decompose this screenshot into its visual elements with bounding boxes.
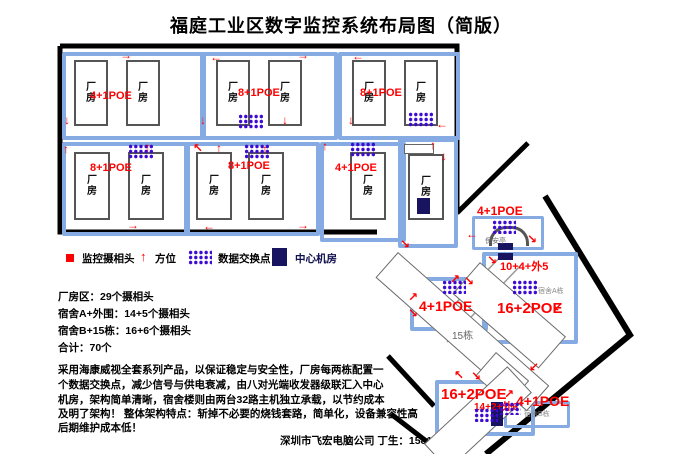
direction-arrow-icon: ↖: [454, 369, 464, 381]
road-edge-upper: [457, 143, 528, 213]
dorm-a-outer-poe: 10+4+外5: [500, 258, 548, 274]
factory-building: 厂 房: [128, 152, 164, 220]
factory-building-label: 厂 房: [261, 175, 271, 198]
direction-arrow-icon: ←: [203, 220, 215, 232]
dorm-b-label: 宿舍B栋: [524, 409, 550, 419]
data-switch-icon: [499, 402, 521, 415]
data-switch-icon: [492, 220, 516, 234]
data-switch-icon: [474, 408, 498, 422]
legend-switch-label: 数据交换点: [218, 251, 271, 266]
legend-direction-icon: ↑: [140, 250, 147, 263]
monitoring-layout-diagram: 福庭工业区数字监控系统布局图（简版） 小平房 厂 房 厂 房 厂 房 厂 房 厂…: [0, 0, 682, 454]
description-line: 及明了架构！ 整体架构特点：斩掉不必要的烧钱套路，简单化，设备兼容性高: [58, 406, 418, 421]
direction-arrow-icon: ↓: [348, 114, 354, 126]
mid-block-poe: 4+1POE: [419, 298, 472, 314]
direction-arrow-icon: ↘: [400, 238, 410, 250]
direction-arrow-icon: ↗: [408, 291, 418, 303]
factory-building-label: 厂 房: [421, 176, 431, 199]
direction-arrow-icon: ↑: [430, 139, 436, 151]
direction-arrow-icon: ↘: [527, 233, 537, 245]
direction-arrow-icon: ↘: [471, 370, 481, 382]
description-line: 机房，架构简单清晰，宿舍楼则由两台32路主机独立承载，以节约成本: [58, 392, 385, 407]
legend-switch-icon: [188, 250, 212, 265]
direction-arrow-icon: ↘: [464, 275, 474, 287]
data-switch-icon: [408, 112, 434, 127]
stats-factory: 厂房区：29个摄相头: [58, 289, 154, 304]
factory-building-label: 厂 房: [209, 175, 219, 198]
direction-arrow-icon: ↓: [282, 114, 288, 126]
factory-building-label: 厂 房: [416, 82, 426, 105]
page-title: 福庭工业区数字监控系统布局图（简版）: [0, 12, 682, 38]
guard-poe-label: 4+1POE: [477, 204, 523, 218]
factory-building: 厂 房: [196, 152, 232, 220]
poe-label-block2: 8+1POE: [238, 87, 280, 99]
direction-arrow-icon: ↑: [322, 140, 328, 152]
factory-building-label: 厂 房: [280, 82, 290, 105]
direction-arrow-icon: ↘: [487, 254, 497, 266]
stats-dorm-a: 宿舍A+外围：14+5个摄相头: [58, 306, 190, 321]
factory-building-label: 厂 房: [363, 175, 373, 198]
road-edge-lower-a: [388, 356, 434, 406]
legend-camera-label: 监控摄相头: [82, 251, 135, 266]
direction-arrow-icon: ←: [436, 118, 448, 130]
direction-arrow-icon: ↓: [64, 114, 70, 126]
legend-server-label: 中心机房: [295, 251, 337, 266]
direction-arrow-icon: ↑: [262, 143, 268, 155]
description-line: 个数据交换点，减少信号与供电衰减，由八对光端收发器级联汇入中心: [58, 377, 384, 392]
direction-arrow-icon: ←: [210, 51, 222, 63]
poe-label-block4: 8+1POE: [90, 162, 132, 174]
factory-building-label: 厂 房: [138, 82, 148, 105]
stats-dorm-b: 宿舍B+15栋：16+6个摄相头: [58, 323, 191, 338]
data-switch-icon: [512, 280, 538, 295]
direction-arrow-icon: ↓: [200, 114, 206, 126]
factory-building-label: 厂 房: [141, 175, 151, 198]
poe-label-block1: 4+1POE: [90, 90, 132, 102]
direction-arrow-icon: ↖: [193, 142, 203, 154]
description-line: 后期维护成本低！: [58, 420, 142, 435]
direction-arrow-icon: ↘: [408, 307, 418, 319]
poe-label-block6: 4+1POE: [335, 162, 377, 174]
direction-arrow-icon: ↑: [63, 143, 69, 155]
description-line: 采用海康威视全套系列产品，以保证稳定与安全性，厂房每两栋配置一: [58, 362, 384, 377]
legend-direction-label: 方位: [155, 251, 176, 266]
legend-server-icon: [272, 248, 287, 266]
direction-arrow-icon: →: [297, 219, 309, 231]
poe-label-block5: 8+1POE: [228, 160, 270, 172]
direction-arrow-icon: ↑: [145, 141, 151, 153]
poe-label-block3: 8+1POE: [360, 87, 402, 99]
direction-arrow-icon: ↗: [450, 273, 460, 285]
direction-arrow-icon: ↙: [529, 361, 539, 373]
server-room-icon: [417, 198, 430, 214]
direction-arrow-icon: ←: [352, 50, 364, 62]
dorm-b-right-poe: 4+1POE: [516, 393, 569, 409]
direction-arrow-icon: →: [297, 49, 309, 61]
stats-total: 合计：70个: [58, 340, 112, 355]
direction-arrow-icon: ←: [466, 228, 478, 240]
direction-arrow-icon: ↓: [441, 150, 447, 162]
data-switch-icon: [238, 114, 264, 129]
factory-building-label: 厂 房: [228, 82, 238, 105]
factory-building-label: 厂 房: [87, 175, 97, 198]
direction-arrow-icon: ↑: [216, 142, 222, 154]
dorm-a-label: 宿舍A栋: [538, 286, 564, 296]
guard-label: 保安亭: [485, 236, 506, 246]
data-switch-icon: [350, 142, 376, 157]
legend-camera-icon: [66, 254, 74, 262]
building-15-label: 15栋: [452, 327, 473, 342]
direction-arrow-icon: →: [120, 49, 132, 61]
direction-arrow-icon: →: [127, 219, 139, 231]
direction-arrow-icon: ↗: [504, 388, 514, 400]
direction-arrow-icon: ↙: [553, 301, 563, 313]
